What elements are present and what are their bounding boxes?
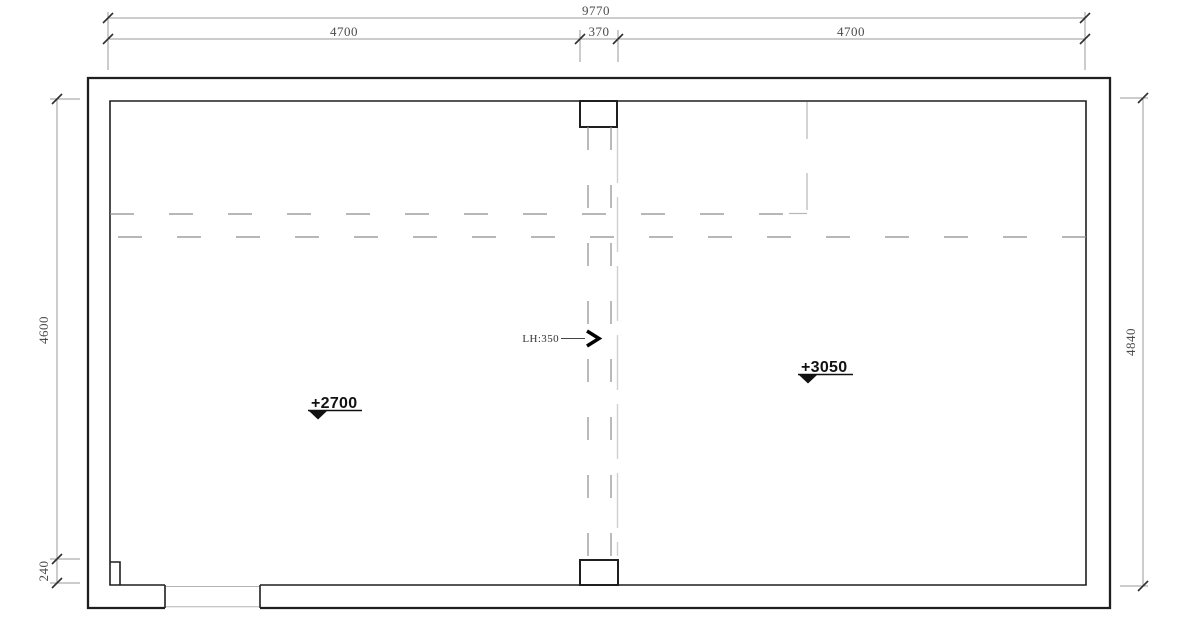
wall-notch: [110, 562, 120, 585]
dim-value-right-span: 4700: [837, 24, 865, 39]
dim-value-right-height: 4840: [1123, 328, 1138, 356]
dim-value-mid-span: 370: [589, 24, 610, 39]
dim-value-left-ledge: 240: [36, 561, 51, 582]
right-dimension-group: 4840: [1120, 93, 1148, 591]
wall-outlines: [88, 78, 1110, 608]
beam-height-label: LH:350: [522, 333, 559, 345]
outer-wall-line: [88, 78, 1110, 608]
left-dimension-group: 4600 240: [36, 94, 80, 588]
level-marker-left: +2700: [308, 395, 362, 420]
dim-value-total-width: 9770: [582, 3, 610, 18]
level-value: +2700: [311, 395, 357, 412]
floor-plan-canvas: 9770 4700 370 4700 4600 240 4840 +2700 +…: [0, 0, 1200, 624]
level-marker-right: +3050: [798, 359, 853, 384]
columns: [580, 101, 618, 585]
triangle-down-icon: [799, 375, 817, 384]
top-dimension-group: 9770 4700 370 4700: [103, 3, 1090, 70]
dim-value-left-height: 4600: [36, 316, 51, 344]
beam-height-callout: LH:350: [522, 331, 599, 346]
level-value: +3050: [801, 359, 847, 376]
top-center-column: [580, 101, 617, 127]
hidden-beam-lines: [110, 102, 1086, 560]
triangle-down-icon: [309, 411, 327, 420]
inner-wall-line: [110, 101, 1086, 585]
bottom-center-column: [580, 560, 618, 585]
chevron-right-icon: [587, 331, 599, 346]
cad-drawing-viewport: 9770 4700 370 4700 4600 240 4840 +2700 +…: [0, 0, 1200, 624]
dim-value-left-span: 4700: [330, 24, 358, 39]
